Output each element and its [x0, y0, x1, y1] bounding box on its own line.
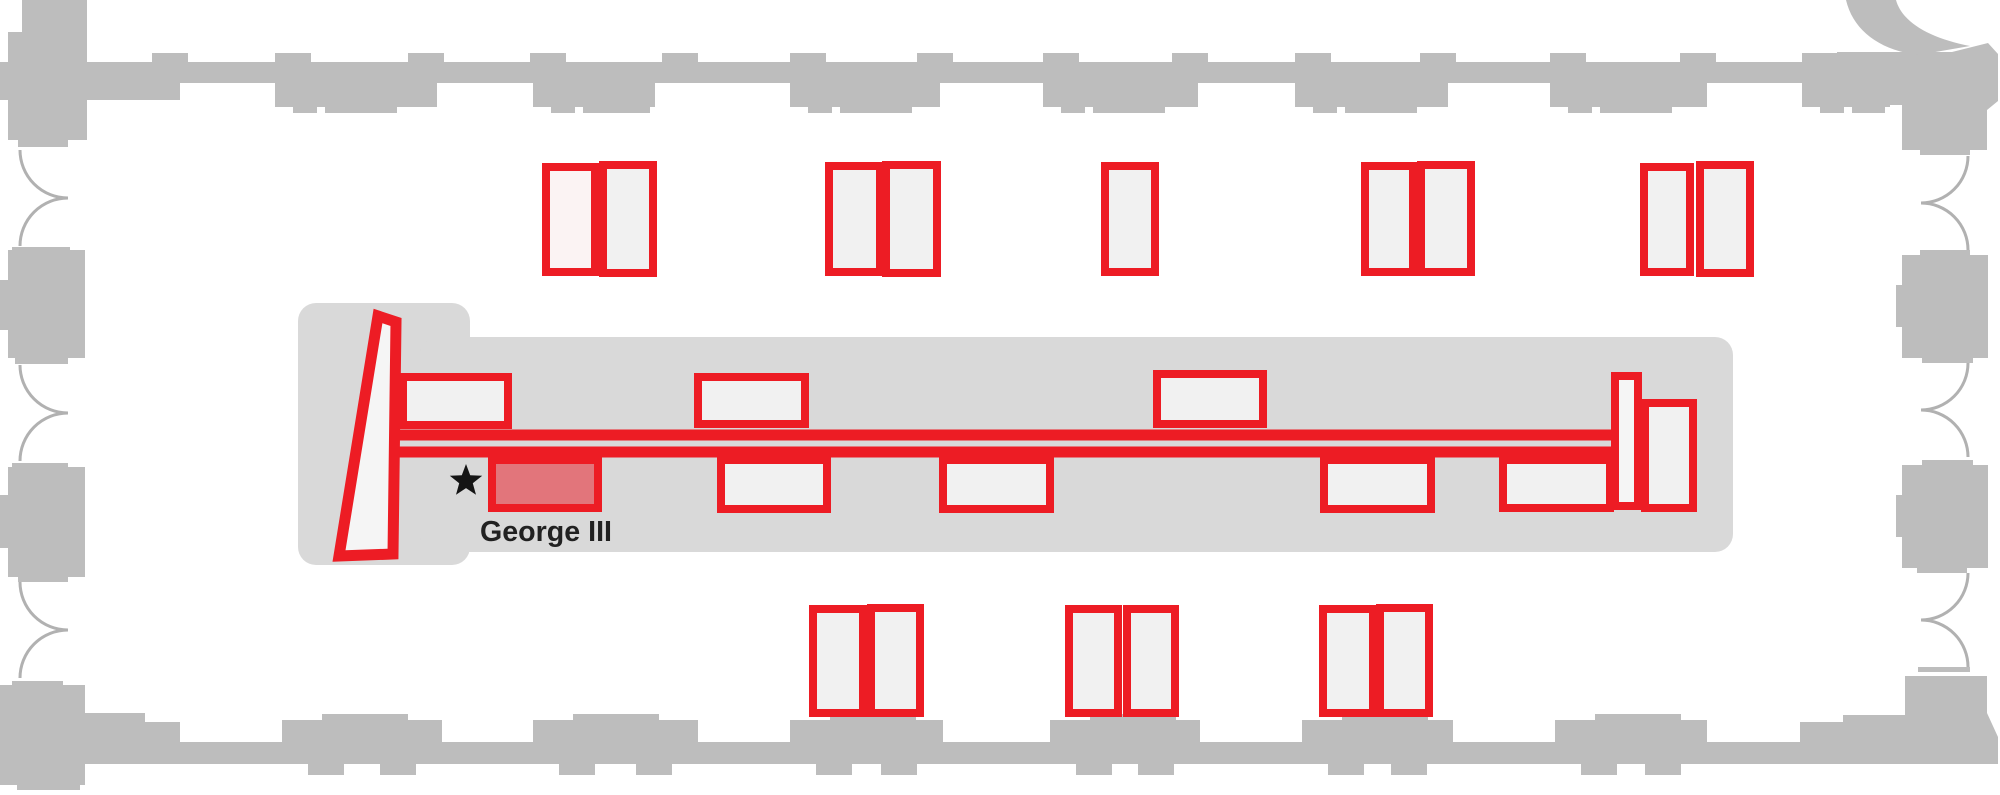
wall-pier-slab	[1302, 720, 1453, 742]
wall-pier-foot	[1328, 764, 1364, 775]
wall-pier-slab	[533, 83, 655, 107]
display-case	[886, 165, 937, 273]
display-case	[1644, 167, 1690, 272]
display-case	[1105, 166, 1155, 272]
wall-pier-foot	[18, 140, 68, 147]
wall-corner-block	[8, 98, 87, 140]
wall-pier-slab	[1550, 83, 1707, 107]
wall-block	[8, 250, 85, 358]
wall-block-lip	[0, 495, 8, 548]
wall-pier-foot	[12, 463, 68, 467]
wall-band-top	[0, 62, 1960, 83]
wall-pier-foot	[18, 577, 68, 582]
wall-curved-corridor	[1846, 0, 1970, 55]
display-case	[1069, 609, 1118, 713]
wall-pier-foot	[559, 764, 595, 775]
wall-niche-arc	[20, 365, 68, 461]
wall-band-bottom	[0, 742, 1998, 764]
wall-pier-foot	[325, 107, 397, 113]
wall-pier-slab	[1295, 83, 1448, 107]
wall-pier-cap	[662, 53, 698, 62]
wall-pier-slab	[275, 83, 437, 107]
display-case	[1324, 460, 1431, 509]
wall-pier-foot	[808, 107, 832, 113]
wall-block	[1902, 465, 1988, 568]
wall-pier-foot	[1313, 107, 1337, 113]
wall-pier-foot	[1093, 107, 1165, 113]
wall-pier-cap	[1420, 53, 1456, 62]
wall-pier-foot	[12, 681, 63, 685]
wall-niche-arc	[1921, 363, 1968, 457]
wall-pier-cap	[1802, 53, 1838, 62]
display-case	[1127, 609, 1175, 713]
display-case	[1421, 165, 1471, 272]
wall-pier-slab	[790, 720, 943, 742]
wall-pier-foot	[1581, 764, 1617, 775]
wall-pier-foot	[380, 764, 416, 775]
wall-pier-foot	[1076, 764, 1112, 775]
wall-pier-slab	[282, 720, 442, 742]
wall-pier-slab	[1043, 83, 1198, 107]
display-case	[829, 166, 880, 272]
location-label: George III	[480, 516, 612, 548]
display-case	[1503, 460, 1610, 508]
wall-pier-cap	[1172, 53, 1208, 62]
wall-pier-foot	[1391, 764, 1427, 775]
wall-niche-arc	[1921, 573, 1968, 667]
wall-pier-foot	[816, 764, 852, 775]
wall-pier-cap	[1550, 53, 1586, 62]
wall-pier-cap	[1043, 53, 1079, 62]
wall-corner-block	[85, 713, 145, 742]
wall-pier-foot	[1922, 460, 1973, 465]
route-turn-bar	[1615, 376, 1638, 506]
display-case	[813, 609, 863, 713]
wall-pier-slab	[1555, 720, 1707, 742]
wall-pier-cap	[152, 53, 188, 62]
wall-pier-cap	[408, 53, 444, 62]
wall-pier-foot	[1917, 568, 1967, 573]
wall-pier-cap	[1680, 53, 1716, 62]
gallery-floor-main	[420, 337, 1733, 552]
floorplan-svg: George III	[0, 0, 2000, 795]
wall-block	[8, 467, 85, 577]
wall-pier-foot	[1600, 107, 1672, 113]
wall-pier-foot	[881, 764, 917, 775]
wall-corner-block	[0, 685, 85, 785]
wall-pier-foot	[1852, 107, 1885, 113]
wall-corner-block	[8, 32, 87, 62]
display-case	[1700, 165, 1750, 273]
wall-pier-foot	[293, 107, 317, 113]
display-case	[1645, 403, 1693, 508]
display-case	[1323, 609, 1373, 713]
wall-pier-foot	[1922, 358, 1973, 363]
floorplan-map: George III	[0, 0, 2000, 795]
wall-pier-cap	[530, 53, 566, 62]
wall-block-lip	[1896, 285, 1902, 327]
wall-pier-foot	[17, 781, 80, 790]
wall-pier-foot	[1061, 107, 1085, 113]
wall-pier-foot	[308, 764, 344, 775]
wall-pier-slab	[1050, 720, 1200, 742]
display-case	[871, 608, 920, 713]
wall-corner-block	[0, 62, 180, 100]
wall-pier-slab	[790, 83, 940, 107]
wall-pier-cap	[275, 53, 311, 62]
wall-niche-arc	[20, 150, 68, 246]
wall-pier-foot	[583, 107, 650, 113]
display-case	[1380, 608, 1429, 713]
wall-niche-arc	[1921, 156, 1968, 250]
wall-pier-cap	[573, 714, 659, 722]
display-case	[603, 165, 653, 273]
wall-pier-cap	[917, 53, 953, 62]
wall-pier-foot	[1918, 667, 1970, 672]
wall-niche-arc	[20, 582, 68, 678]
wall-pier-cap	[1595, 714, 1681, 722]
display-case-highlighted	[492, 460, 598, 508]
wall-pier-foot	[15, 358, 68, 364]
wall-pier-foot	[1645, 764, 1681, 775]
wall-block-lip	[0, 280, 8, 330]
display-case	[721, 460, 827, 509]
wall-pier-foot	[1920, 150, 1970, 155]
display-case	[698, 377, 805, 424]
wall-corner-block	[145, 722, 180, 742]
wall-corner-block	[22, 0, 87, 32]
wall-pier-foot	[1820, 107, 1844, 113]
wall-block	[1902, 110, 1987, 150]
wall-pier-foot	[840, 107, 912, 113]
wall-pier-foot	[1568, 107, 1592, 113]
display-case	[1365, 166, 1413, 272]
display-case	[403, 377, 508, 425]
display-case	[1157, 374, 1263, 424]
wall-block-lip	[1896, 495, 1902, 537]
wall-pier-foot	[1920, 250, 1970, 255]
wall-pier-foot	[1138, 764, 1174, 775]
wall-pier-foot	[1345, 107, 1417, 113]
wall-pier-slab	[533, 720, 698, 742]
wall-pier-foot	[551, 107, 575, 113]
wall-pier-cap	[790, 53, 826, 62]
wall-block	[1902, 255, 1988, 358]
display-case	[943, 460, 1050, 509]
wall-pier-cap	[1295, 53, 1331, 62]
display-case	[546, 167, 595, 272]
wall-pier-foot	[636, 764, 672, 775]
wall-pier-cap	[322, 714, 408, 722]
wall-pier-foot	[12, 247, 70, 251]
